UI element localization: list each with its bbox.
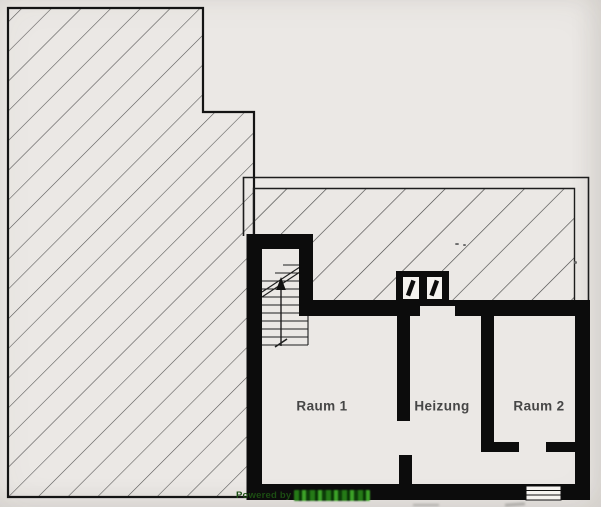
watermark-logo-illegible xyxy=(294,490,370,501)
wall-raum1-heizung-upper xyxy=(397,316,410,421)
watermark: Powered by xyxy=(236,488,370,502)
chimney-icon xyxy=(396,271,449,305)
scan-speck xyxy=(455,243,459,245)
hatched-adjacent-area xyxy=(8,8,254,497)
wall-left xyxy=(247,234,263,500)
scan-speck xyxy=(463,244,466,246)
wall-right xyxy=(575,300,590,500)
scan-smudge xyxy=(413,504,439,506)
scan-speck xyxy=(574,261,577,264)
watermark-powered-by-text: Powered by xyxy=(236,490,291,501)
wall-raum1-heizung-lower xyxy=(399,455,412,484)
wall-raum2-south-right xyxy=(546,442,590,452)
floor-plan-scan: Raum 1 Heizung Raum 2 Powered by xyxy=(0,0,601,507)
room-label-raum1: Raum 1 xyxy=(296,399,347,414)
window-icon xyxy=(526,486,561,500)
room-label-heizung: Heizung xyxy=(414,399,469,414)
wall-heizung-raum2 xyxy=(481,316,494,442)
wall-raum2-south-left xyxy=(481,442,519,452)
floorplan-drawing xyxy=(0,0,601,507)
wall-stair-right xyxy=(299,234,313,310)
room-label-raum2: Raum 2 xyxy=(513,399,564,414)
wall-recess xyxy=(420,306,455,316)
